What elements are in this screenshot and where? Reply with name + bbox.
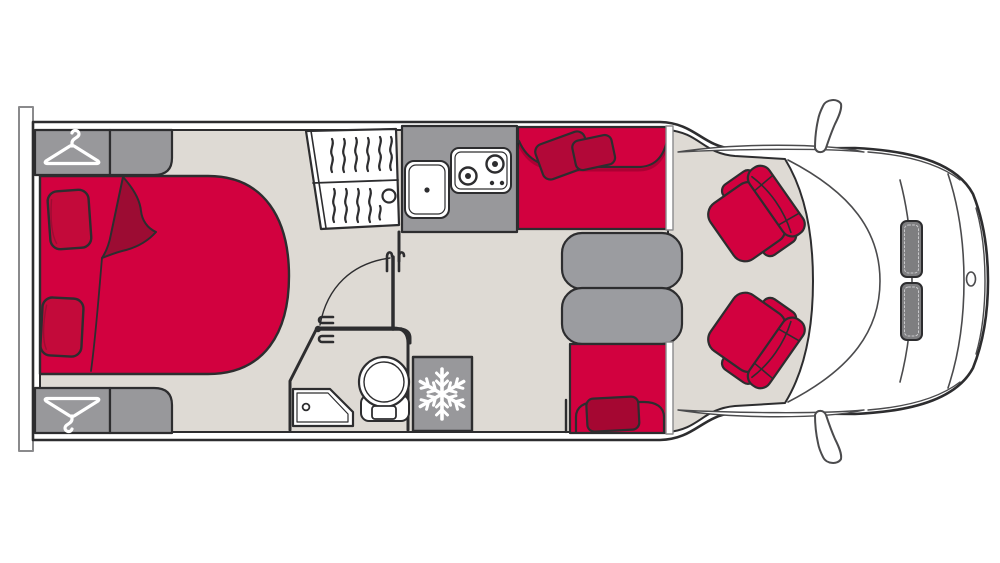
bed-pillow-2 [40,297,84,357]
hanging-closet [306,129,399,229]
rear-bench-pillow [586,396,640,432]
motorhome-floorplan [0,0,1000,563]
kitchen-hob [451,148,511,193]
wardrobe-bottom [35,388,172,433]
shower-drain [303,404,310,411]
headlight-bottom [901,283,922,340]
sink-drain [424,187,429,192]
floorplan-svg [0,0,1000,563]
b-pillar-bottom [666,342,673,434]
headlight-top [901,221,922,277]
bed-pillow-1 [47,189,92,250]
table-half-bottom [562,288,682,344]
kitchen-counter [402,126,517,232]
rear-wall-panel [19,107,33,451]
wardrobe-bottom-cabinet [110,388,172,433]
table-half-top [562,233,682,289]
hob-knob-1 [490,181,494,185]
dinette-bench-rear [566,344,668,433]
toilet [359,357,409,421]
wardrobe-top [35,130,172,175]
dinette-bench-front [518,127,668,229]
wardrobe-top-cabinet [110,130,172,175]
door-hinge [315,326,321,332]
kitchen-sink [405,161,449,218]
dinette-table [562,233,682,344]
side-mirror-bottom [815,411,841,463]
b-pillar-top [666,126,673,230]
hob-knob-2 [500,181,504,185]
fridge [413,357,472,431]
brand-emblem [967,272,976,286]
side-mirror-top [815,100,841,152]
